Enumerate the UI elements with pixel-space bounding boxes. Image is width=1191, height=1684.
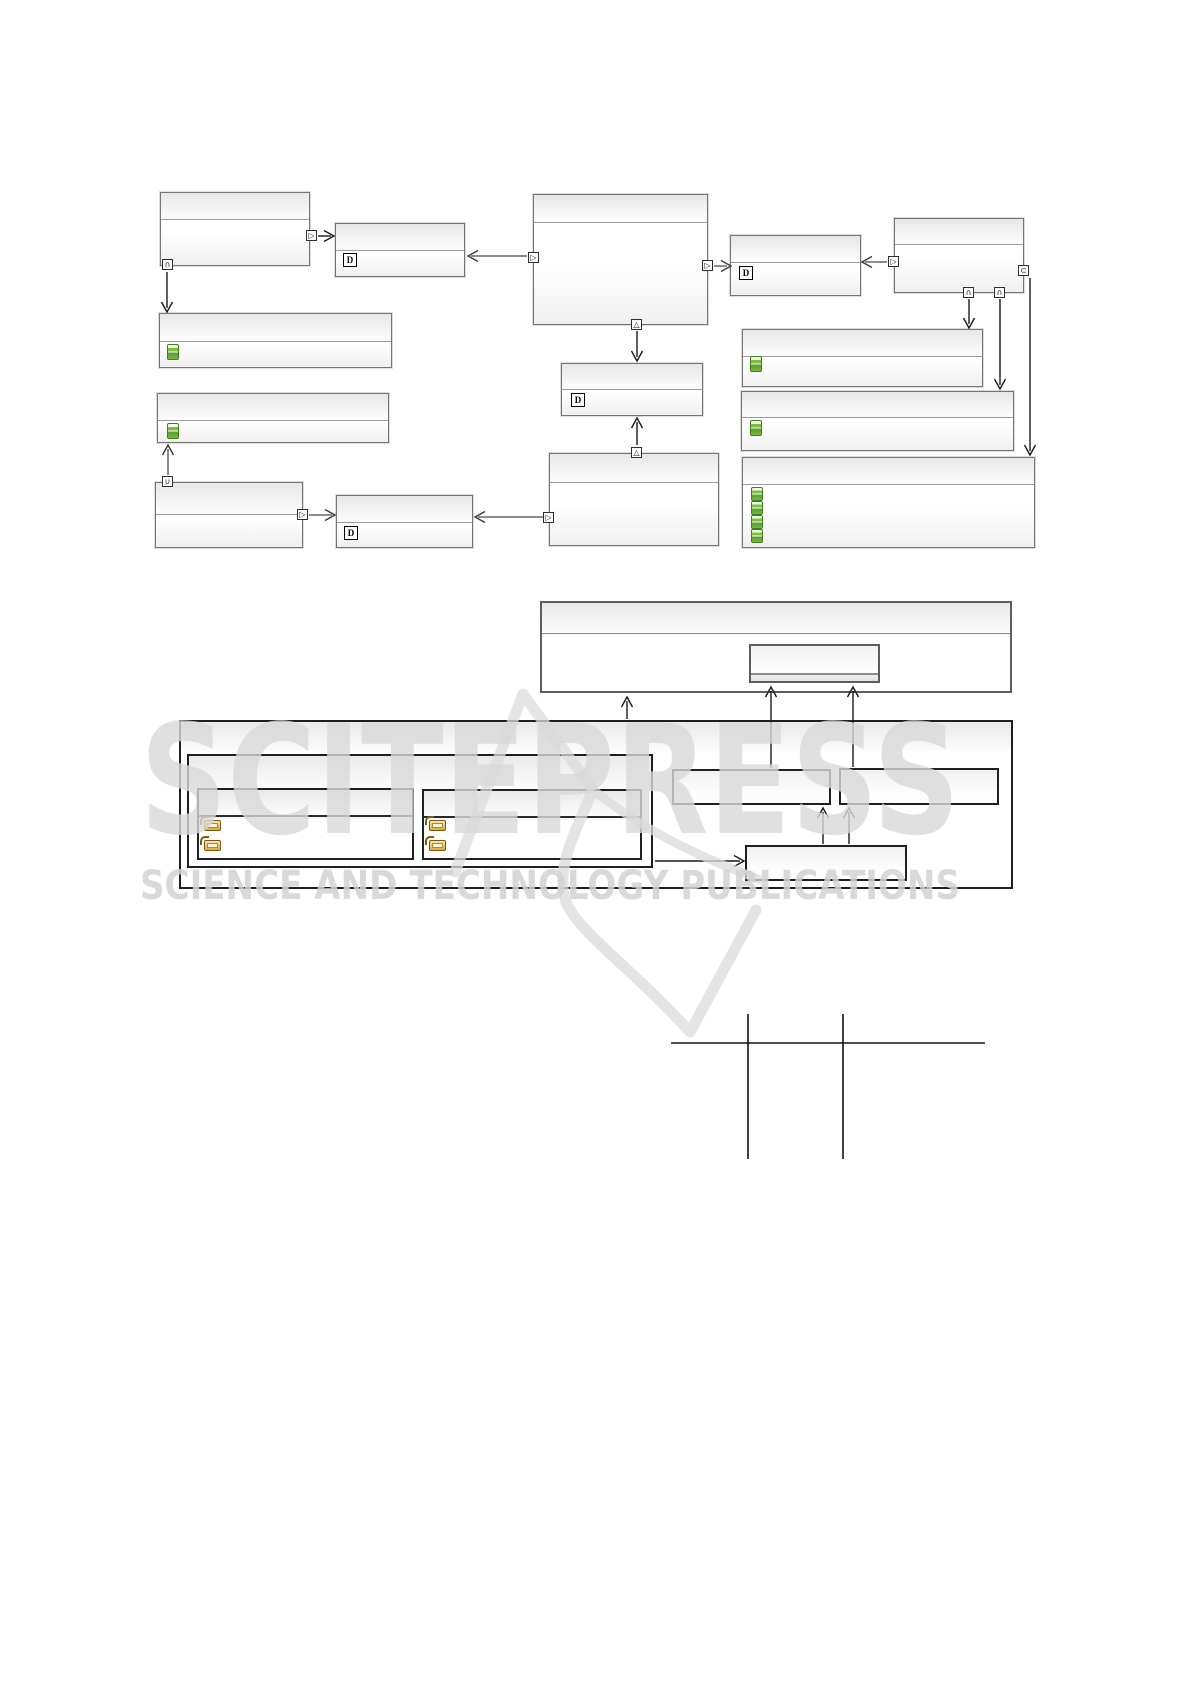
class-box-d1 [335,223,465,277]
component-box-r2 [839,768,999,805]
box-header [156,483,302,515]
class-box-bottom-center [549,453,719,546]
box-header [189,756,651,788]
containment-port-icon: ∪ [162,476,173,487]
box-header [542,603,1010,634]
attribute-icon [750,356,762,372]
containment-port-icon: ∩ [963,287,974,298]
attribute-icon [751,515,763,529]
datatype-icon: D [739,266,753,280]
box-header [199,790,412,817]
box-header [160,314,391,342]
subset-port-icon: ⊂ [1018,265,1029,276]
out-port-icon: ▷ [543,512,554,523]
inheritance-port-icon: △ [631,447,642,458]
attribute-icon [751,487,763,501]
reference-icon [204,820,221,831]
reference-icon [429,840,446,851]
out-port-icon: ▷ [306,230,317,241]
component-box-r1 [672,769,831,805]
box-header [731,236,860,263]
component-box-inner-small [749,644,880,683]
box-body [424,820,640,858]
inheritance-port-icon: △ [631,319,642,330]
box-header [424,791,640,818]
datatype-icon: D [344,526,358,540]
out-port-icon: ▷ [888,256,899,267]
box-header [161,193,309,220]
attribute-icon [167,423,179,439]
box-header [742,392,1013,418]
class-box-top-left [160,192,310,266]
component-box-bottom [745,845,907,881]
box-header [550,454,718,483]
attribute-box-1 [159,313,392,368]
class-box-central [533,194,708,325]
box-header [895,219,1023,245]
box-header [337,496,472,523]
containment-port-icon: ∩ [994,287,1005,298]
attribute-box-2 [157,393,389,443]
attribute-box-3 [742,329,983,387]
datatype-icon: D [343,253,357,267]
attribute-icon [751,501,763,515]
attribute-icon [167,344,179,360]
attribute-box-4 [741,391,1014,451]
box-footer-strip [751,673,878,681]
box-header [336,224,464,251]
class-box-d2 [336,495,473,548]
attribute-icon [750,420,762,436]
reference-icon [429,820,446,831]
box-header [743,330,982,357]
out-port-icon: ▷ [702,260,713,271]
reference-box-left [197,788,414,860]
box-header [158,394,388,421]
out-port-icon: ▷ [528,252,539,263]
class-box-top-right [894,218,1024,293]
box-header [743,458,1034,485]
box-header [562,364,702,390]
class-box-d3 [561,363,703,416]
attribute-icon [751,529,763,543]
datatype-icon: D [571,393,585,407]
attribute-box-5 [742,457,1035,548]
paper-page: ▷ ∩ ∪ ▷ ▷ △ ▷ ▷ △ ▷ ∩ ∩ ⊂ D D D D [0,0,1191,1684]
reference-icon [204,840,221,851]
containment-port-icon: ∩ [162,259,173,270]
box-header [181,722,1011,751]
out-port-icon: ▷ [297,509,308,520]
box-header [534,195,707,223]
table-rules [671,1014,985,1159]
box-body [199,819,412,858]
class-box-bottom-left [155,482,303,548]
reference-box-right [422,789,642,860]
